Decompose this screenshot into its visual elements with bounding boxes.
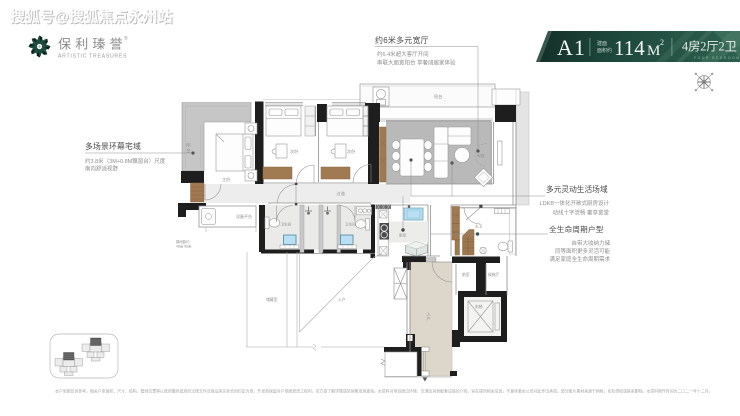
svg-text:入户: 入户: [338, 297, 346, 302]
svg-text:厨房: 厨房: [399, 233, 407, 238]
svg-text:ARTISTIC TREASURES: ARTISTIC TREASURES: [58, 54, 127, 60]
svg-text:同等面积更多灵活可能: 同等面积更多灵活可能: [555, 247, 611, 255]
svg-text:面积约: 面积约: [597, 47, 612, 54]
svg-text:约6.4米超大客厅开间: 约6.4米超大客厅开间: [377, 50, 429, 58]
svg-text:阳台: 阳台: [187, 142, 192, 154]
svg-text:建面: 建面: [597, 40, 607, 47]
svg-text:约3.8米（3M+0.8M飘窗台）尺度: 约3.8米（3M+0.8M飘窗台）尺度: [85, 157, 166, 165]
svg-text:卫生间: 卫生间: [345, 222, 356, 227]
svg-text:主卧: 主卧: [222, 176, 230, 183]
svg-text:电梯: 电梯: [475, 304, 483, 309]
svg-text:多元灵动生活场域: 多元灵动生活场域: [546, 184, 608, 194]
svg-text:主卫: 主卫: [475, 224, 483, 229]
svg-text:A1: A1: [557, 35, 586, 60]
svg-text:候梯厅: 候梯厅: [488, 272, 500, 277]
svg-text:储藏室: 储藏室: [266, 297, 278, 302]
svg-text:全生命周期户型: 全生命周期户型: [549, 224, 604, 234]
svg-text:电视: 电视: [477, 153, 485, 158]
svg-text:楼间距约: 楼间距约: [176, 239, 190, 244]
svg-text:搜狐号@搜狐焦点永州站: 搜狐号@搜狐焦点永州站: [10, 8, 173, 26]
svg-text:48米-98米: 48米-98米: [176, 244, 192, 249]
svg-text:满足家庭全生命周期需求: 满足家庭全生命周期需求: [549, 255, 610, 263]
svg-text:南向舒适视野: 南向舒适视野: [85, 165, 119, 173]
svg-text:次卧: 次卧: [347, 148, 355, 155]
svg-text:®: ®: [124, 35, 128, 42]
svg-text:前室: 前室: [462, 272, 470, 277]
svg-text:卫生间: 卫生间: [281, 222, 292, 227]
svg-text:本户型图仅供参考，相关户型面积、尺寸、结构、管线位置等以政府: 本户型图仅供参考，相关户型面积、尺寸、结构、管线位置等以政府最终批准的法律文件及…: [55, 389, 713, 394]
svg-text:LDKB一体化开敞式厨房设计: LDKB一体化开敞式厨房设计: [540, 199, 610, 207]
svg-text:2: 2: [660, 38, 664, 47]
svg-text:4房2厅2卫: 4房2厅2卫: [682, 39, 737, 54]
svg-text:自带大收纳力储: 自带大收纳力储: [571, 239, 610, 247]
svg-text:动线十字流畅 奢享宽堂: 动线十字流畅 奢享宽堂: [552, 209, 609, 217]
svg-text:约6米多元宽厅: 约6米多元宽厅: [375, 35, 429, 45]
svg-text:114: 114: [614, 36, 645, 60]
svg-text:阳台: 阳台: [434, 93, 442, 100]
svg-text:设备平台: 设备平台: [236, 213, 252, 219]
svg-text:串联大面宽阳台 享奢阔居家体验: 串联大面宽阳台 享奢阔居家体验: [377, 59, 456, 67]
svg-text:M: M: [647, 43, 660, 59]
svg-text:过道: 过道: [337, 190, 346, 197]
svg-text:FOUR BEDROOM: FOUR BEDROOM: [694, 56, 740, 60]
svg-text:多场景环幕宅域: 多场景环幕宅域: [85, 141, 141, 151]
svg-text:次卧: 次卧: [290, 148, 298, 155]
svg-text:保利瑧誉: 保利瑧誉: [58, 37, 127, 52]
